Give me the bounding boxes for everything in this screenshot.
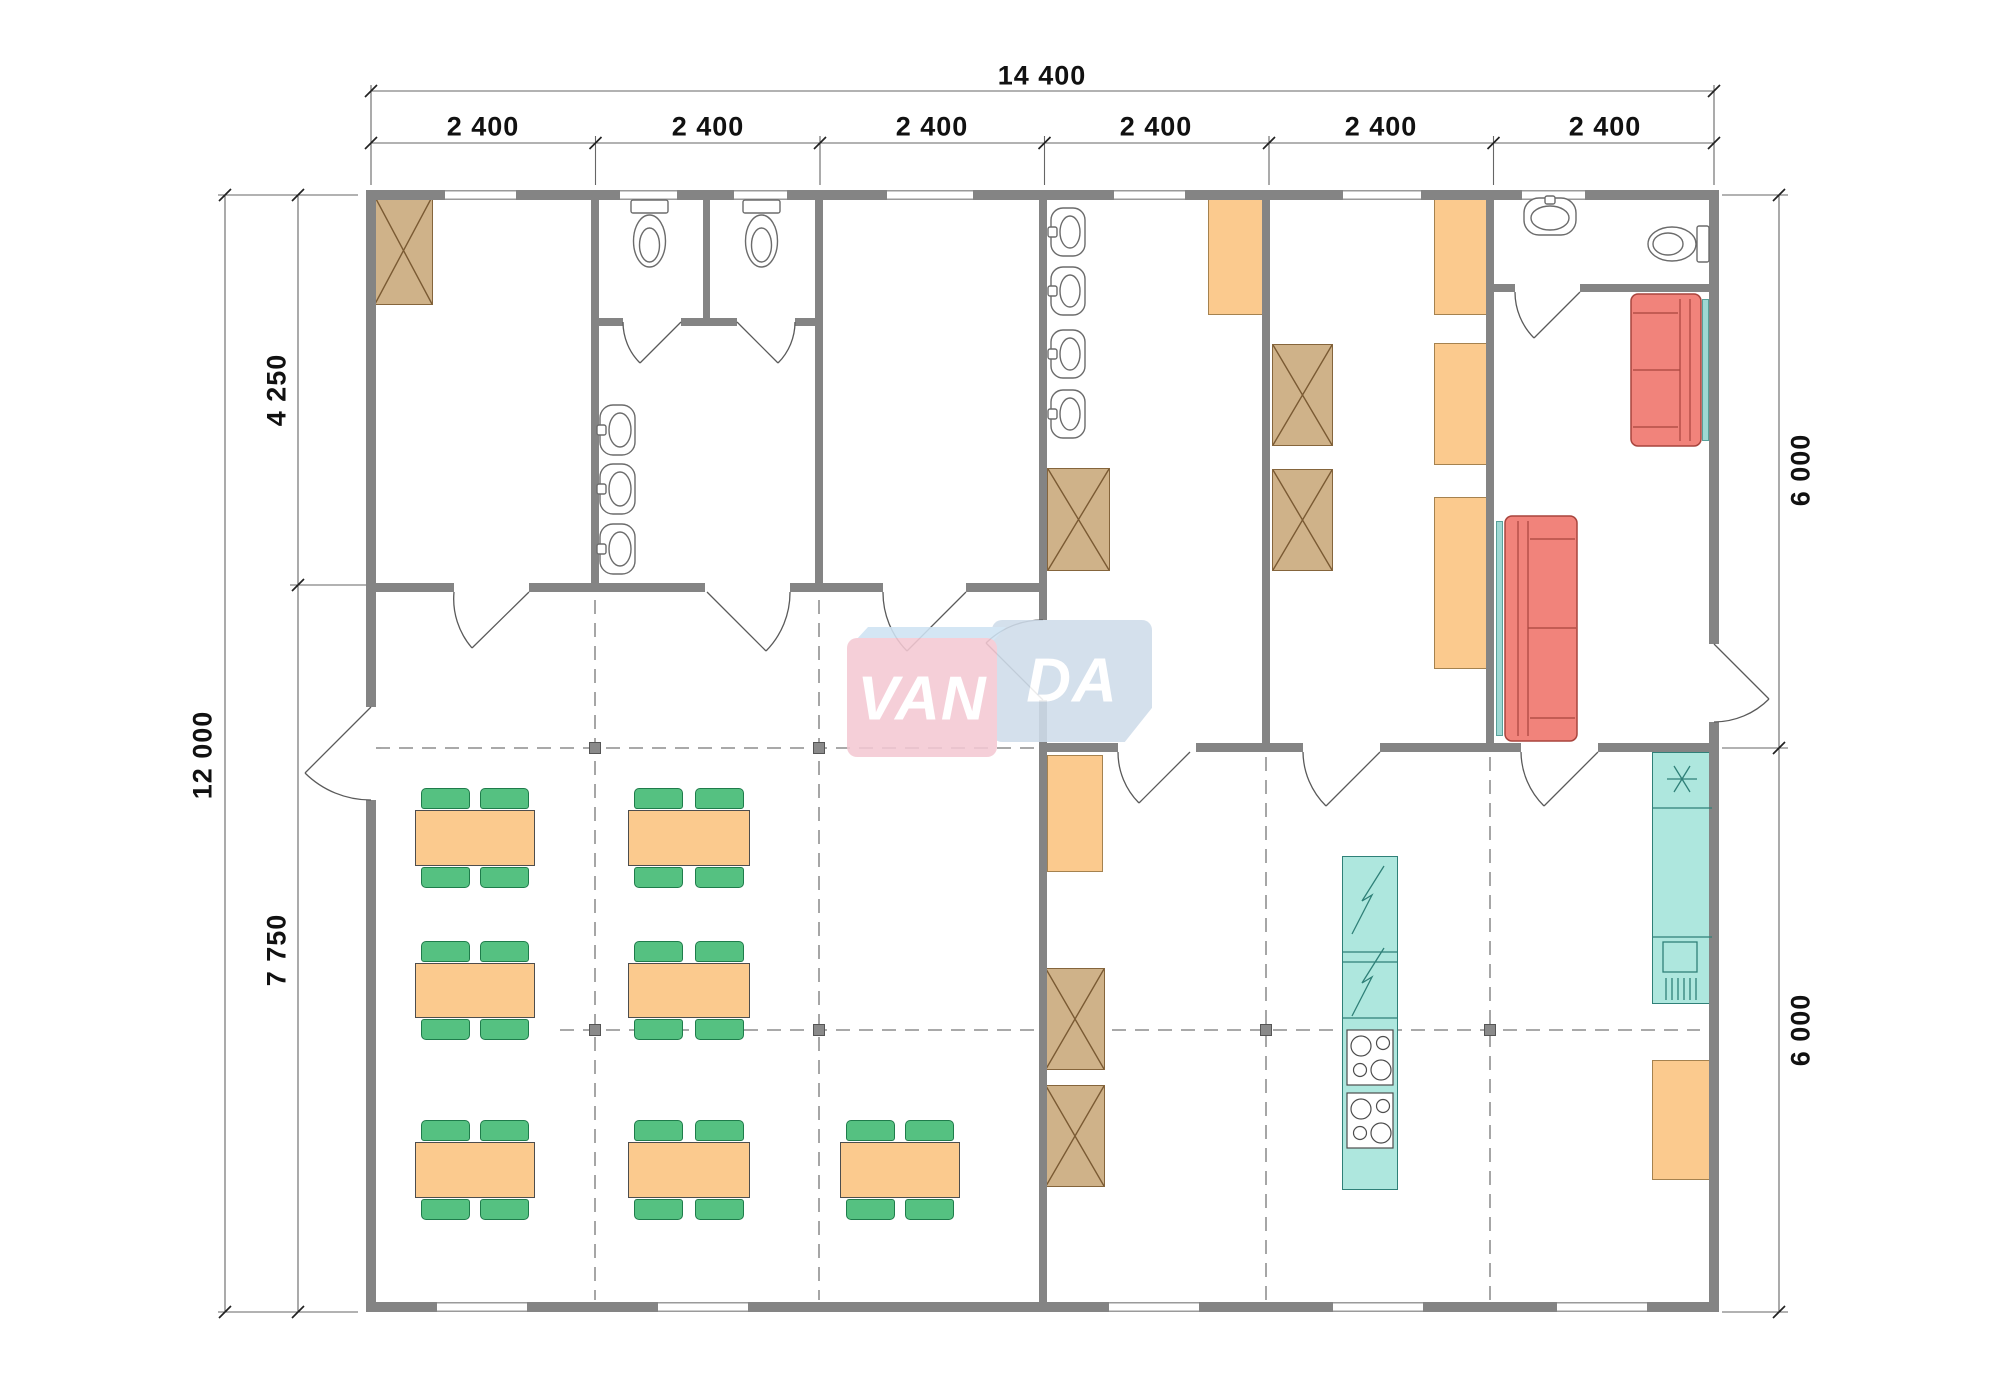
window [1343, 190, 1421, 200]
wall-interior [790, 583, 883, 592]
wall-exterior-left [366, 800, 376, 1312]
chair [846, 1199, 895, 1220]
wardrobe-room-m2-2 [1272, 469, 1333, 571]
chair [846, 1120, 895, 1141]
dining-table [415, 810, 535, 866]
dim-module: 2 400 [896, 112, 969, 143]
window [620, 190, 677, 200]
chair [634, 788, 683, 809]
window [1109, 1302, 1199, 1312]
wall-interior [1598, 743, 1709, 752]
wardrobe-kitchen-1 [1045, 968, 1105, 1070]
dim-left-upper: 4 250 [262, 354, 293, 427]
wall-interior [1262, 200, 1270, 747]
sofa-back-strip [1702, 299, 1709, 441]
wall-wc-front [795, 318, 815, 326]
wall-interior [529, 583, 705, 592]
bed-bench-m2-1 [1434, 193, 1488, 315]
watermark-text-da: DA [1026, 646, 1118, 717]
wall-bathroom [1494, 284, 1515, 292]
chair [421, 941, 470, 962]
bed-bench-m2-2 [1434, 343, 1488, 465]
chair [480, 867, 529, 888]
watermark-text-van: VAN [857, 664, 986, 735]
wall-interior [1486, 200, 1494, 747]
chair [695, 1019, 744, 1040]
dim-module: 2 400 [1569, 112, 1642, 143]
kitchen-island [1342, 856, 1398, 1190]
chair [695, 867, 744, 888]
window [887, 190, 973, 200]
chair [695, 788, 744, 809]
wall-interior [815, 200, 823, 585]
bed-bench-mudroom [1208, 193, 1264, 315]
chair [480, 788, 529, 809]
chair [480, 1019, 529, 1040]
sofa-east [1630, 293, 1702, 447]
chair [634, 867, 683, 888]
window [1557, 1302, 1647, 1312]
wall-exterior-top [366, 190, 1719, 200]
dim-module: 2 400 [1345, 112, 1418, 143]
chair [695, 1120, 744, 1141]
toilet [631, 200, 1709, 267]
dining-table [628, 810, 750, 866]
chair [634, 1199, 683, 1220]
window [445, 190, 516, 200]
wall-interior [966, 583, 1039, 592]
wall-interior [1047, 743, 1118, 752]
chair [634, 1019, 683, 1040]
wall-wc-divider [703, 200, 710, 322]
fridge-freezer-counter [1652, 752, 1712, 1004]
wall-interior [1039, 585, 1047, 620]
cabinet-kitchen-west [1047, 755, 1103, 872]
chair [480, 941, 529, 962]
wall-interior [591, 200, 599, 585]
chair [695, 941, 744, 962]
wall-wc-front [599, 318, 623, 326]
dining-table [628, 963, 750, 1018]
chair [480, 1199, 529, 1220]
dim-total-height: 12 000 [188, 711, 219, 800]
dim-module: 2 400 [447, 112, 520, 143]
wall-bathroom [1580, 284, 1709, 292]
wall-wc-front [681, 318, 737, 326]
dining-table [415, 1142, 535, 1198]
chair [421, 867, 470, 888]
wall-exterior-bottom [366, 1302, 1719, 1312]
chair [480, 1120, 529, 1141]
window [658, 1302, 748, 1312]
dining-table [415, 963, 535, 1018]
dim-total-width: 14 400 [998, 61, 1087, 92]
wall-interior [1039, 200, 1047, 585]
window [734, 190, 787, 200]
dining-table [840, 1142, 960, 1198]
chair [421, 1120, 470, 1141]
sofa-west [1504, 515, 1578, 742]
bed-bench-m2-3 [1434, 497, 1488, 669]
chair [421, 1019, 470, 1040]
window [437, 1302, 527, 1312]
sofa-back-strip [1496, 521, 1503, 736]
dining-table [628, 1142, 750, 1198]
wall-exterior-right [1709, 722, 1719, 1312]
wall-exterior-left [366, 190, 376, 707]
dim-right-lower: 6 000 [1786, 994, 1817, 1067]
wall-interior [1039, 700, 1047, 1302]
window [1333, 1302, 1423, 1312]
wall-interior [1196, 743, 1303, 752]
chair [421, 1199, 470, 1220]
wall-exterior-right [1709, 190, 1719, 644]
dim-right-upper: 6 000 [1786, 434, 1817, 507]
chair [695, 1199, 744, 1220]
wardrobe-room-a [374, 196, 433, 305]
wardrobe-mudroom [1047, 468, 1110, 571]
wardrobe-kitchen-2 [1045, 1085, 1105, 1187]
wall-interior [371, 583, 454, 592]
wall-interior [1380, 743, 1521, 752]
dim-left-lower: 7 750 [262, 914, 293, 987]
chair [905, 1199, 954, 1220]
floor-plan: 14 400 2 400 2 400 2 400 2 400 2 400 2 4… [0, 0, 2000, 1380]
window [1522, 190, 1585, 200]
wardrobe-room-m2-1 [1272, 344, 1333, 446]
dim-module: 2 400 [1120, 112, 1193, 143]
cabinet-kitchen-east [1652, 1060, 1712, 1180]
dim-module: 2 400 [672, 112, 745, 143]
chair [634, 1120, 683, 1141]
chair [421, 788, 470, 809]
chair [905, 1120, 954, 1141]
chair [634, 941, 683, 962]
window [1114, 190, 1185, 200]
